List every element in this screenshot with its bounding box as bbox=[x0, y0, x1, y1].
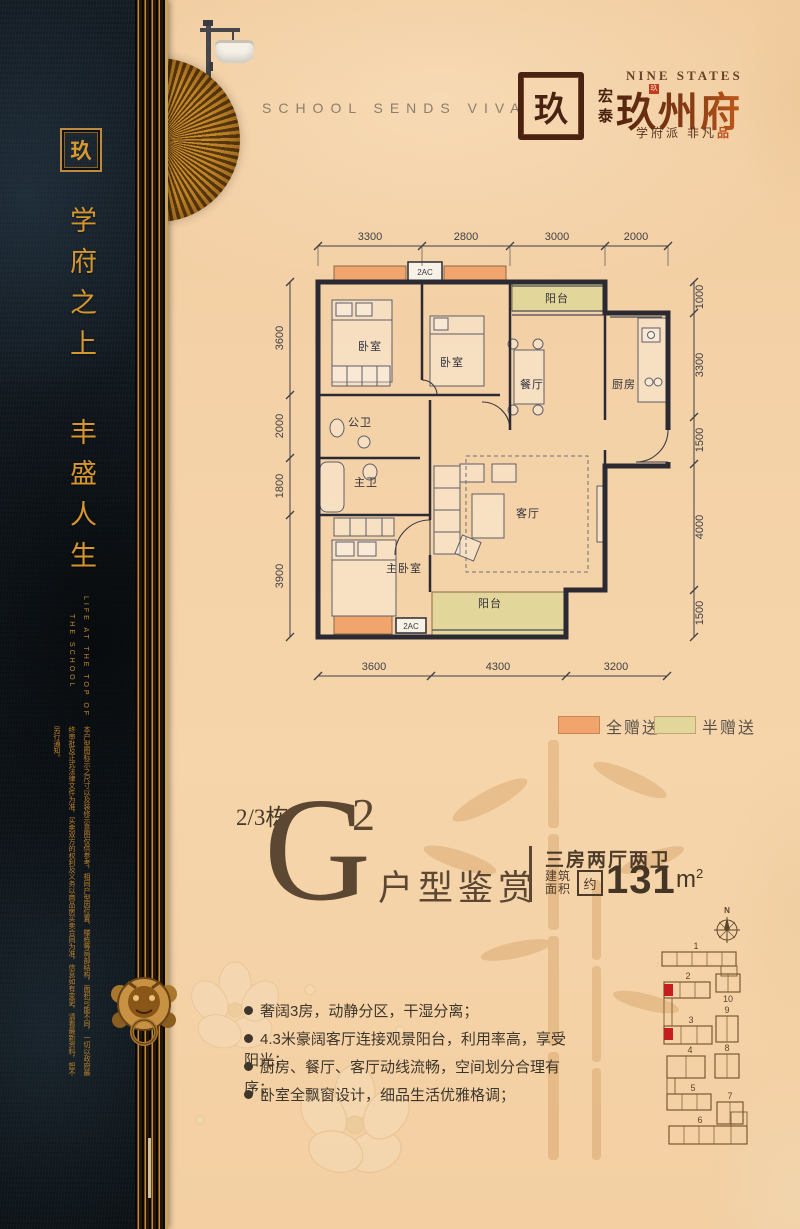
siteplan-key-map: N 1 2 3 4 5 6 bbox=[648, 898, 780, 1158]
bathtub bbox=[320, 462, 344, 512]
svg-text:6: 6 bbox=[697, 1115, 702, 1125]
unit-type-superscript: 2 bbox=[352, 788, 375, 841]
bay-window-full-gift-3 bbox=[334, 616, 392, 634]
area-label: 建筑 面积 bbox=[545, 870, 571, 896]
svg-text:3300: 3300 bbox=[694, 353, 706, 377]
svg-text:1: 1 bbox=[693, 941, 698, 951]
svg-text:1500: 1500 bbox=[694, 601, 706, 625]
bullet-icon bbox=[244, 1062, 253, 1071]
building-1 bbox=[662, 952, 736, 966]
svg-text:4: 4 bbox=[687, 1045, 692, 1055]
lamp-pole-bracket bbox=[209, 62, 213, 71]
area-value: 131 bbox=[606, 858, 676, 903]
svg-text:1500: 1500 bbox=[694, 428, 706, 452]
svg-text:3000: 3000 bbox=[545, 231, 569, 243]
room-label-bedroom1: 卧室 bbox=[358, 339, 382, 353]
svg-text:9: 9 bbox=[724, 1005, 729, 1015]
room-label-bath: 公卫 bbox=[348, 417, 372, 429]
svg-text:4000: 4000 bbox=[694, 515, 706, 539]
highlighted-unit-building-2 bbox=[664, 984, 673, 996]
svg-text:1800: 1800 bbox=[274, 474, 286, 498]
svg-text:3200: 3200 bbox=[604, 661, 628, 673]
brand-tagline-accent: 品 bbox=[717, 126, 732, 140]
sidebar-slogan-en-1: LIFE AT THE TOP OF bbox=[82, 596, 89, 718]
room-label-master-bath: 主卫 bbox=[354, 476, 378, 489]
bullet-icon bbox=[244, 1006, 253, 1015]
dining-table bbox=[514, 350, 544, 404]
wardrobe-master bbox=[334, 518, 394, 536]
bedroom2-door-arc bbox=[482, 402, 510, 430]
legend-label-half-gift: 半赠送 bbox=[702, 714, 756, 738]
feature-item-1: 奢阔3房，动静分区，干湿分离； bbox=[244, 1000, 574, 1021]
entry-door-arc bbox=[636, 430, 668, 462]
legend-swatch-full-gift bbox=[558, 716, 600, 734]
brand-prefix: 宏泰 bbox=[594, 88, 615, 128]
header-english-slogan: SCHOOL SENDS VIVA bbox=[262, 100, 526, 116]
compass-icon bbox=[714, 917, 740, 943]
feature-text-4: 卧室全飘窗设计，细品生活优雅格调； bbox=[260, 1087, 515, 1104]
room-label-bedroom2: 卧室 bbox=[440, 355, 464, 369]
feature-text-1: 奢阔3房，动静分区，干湿分离； bbox=[260, 1003, 478, 1020]
poster-page: 玖 学府之上 丰盛人生 LIFE AT THE TOP OF THE SCHOO… bbox=[0, 0, 800, 1229]
floorplan-drawing: 2AC 2AC bbox=[270, 222, 715, 692]
brand-tagline: 学府派 非凡品 bbox=[636, 124, 732, 141]
compass-north-label: N bbox=[724, 906, 730, 915]
lion-knocker-emblem bbox=[106, 968, 182, 1056]
lamp-post-finial bbox=[203, 20, 213, 26]
sidebar-seal-logo: 玖 bbox=[60, 128, 102, 172]
svg-text:2: 2 bbox=[685, 971, 690, 981]
brand-seal-char: 玖 bbox=[534, 82, 568, 131]
area-label-bottom: 面积 bbox=[545, 883, 571, 896]
brand-mini-seal: 玖 bbox=[649, 84, 659, 94]
svg-text:3600: 3600 bbox=[362, 661, 386, 673]
siteplan-building-numbers: 1 2 3 4 5 6 7 8 9 10 bbox=[685, 941, 733, 1125]
svg-text:2000: 2000 bbox=[624, 231, 648, 243]
title-divider bbox=[529, 846, 532, 902]
legend-label-full-gift: 全赠送 bbox=[606, 714, 660, 738]
lamp-shade bbox=[215, 40, 254, 63]
room-label-living: 客厅 bbox=[516, 506, 540, 520]
coffee-table bbox=[472, 494, 504, 538]
bullet-icon bbox=[244, 1034, 253, 1043]
svg-text:3900: 3900 bbox=[274, 564, 286, 588]
legend-swatch-half-gift bbox=[654, 716, 696, 734]
toilet-bath1 bbox=[330, 419, 344, 437]
room-label-kitchen: 厨房 bbox=[612, 378, 636, 391]
room-label-balcony-top: 阳台 bbox=[545, 291, 569, 305]
room-label-master-bedroom: 主卧室 bbox=[386, 561, 422, 575]
svg-text:3300: 3300 bbox=[358, 231, 382, 243]
brand-tagline-main: 学府派 非凡 bbox=[636, 126, 717, 140]
building-5 bbox=[667, 1094, 711, 1110]
gold-bar-glint bbox=[148, 1138, 151, 1198]
svg-text:3600: 3600 bbox=[274, 326, 286, 350]
master-door-arc bbox=[395, 520, 430, 555]
wardrobe-1 bbox=[332, 366, 390, 386]
approx-box: 约 bbox=[577, 870, 603, 896]
feature-item-4: 卧室全飘窗设计，细品生活优雅格调； bbox=[244, 1084, 574, 1105]
svg-text:10: 10 bbox=[723, 994, 733, 1004]
svg-text:1000: 1000 bbox=[694, 285, 706, 309]
unit-title-suffix: 户型鉴赏 bbox=[378, 860, 538, 911]
area-unit-m: m bbox=[676, 866, 696, 893]
sidebar-slogan-line2: 丰盛人生 bbox=[62, 418, 101, 582]
bullet-icon bbox=[244, 1090, 253, 1099]
room-label-dining: 餐厅 bbox=[520, 377, 544, 391]
sidebar-disclaimer: 本户型图标示之尺寸以及装修示意图仅供参考，相同户型因位置、楼栋等局部结构，面积可… bbox=[58, 726, 94, 1078]
highlighted-unit-building-3 bbox=[664, 1028, 673, 1040]
building-6 bbox=[669, 1126, 747, 1144]
ac-label-top: 2AC bbox=[417, 268, 433, 277]
svg-text:2000: 2000 bbox=[274, 414, 286, 438]
svg-text:5: 5 bbox=[690, 1083, 695, 1093]
siteplan-buildings bbox=[662, 952, 747, 1144]
room-label-balcony-bottom: 阳台 bbox=[478, 596, 502, 610]
brand-seal-logo: 玖 bbox=[518, 72, 584, 140]
area-unit-sup: 2 bbox=[696, 866, 703, 881]
sidebar-seal-char: 玖 bbox=[71, 135, 92, 165]
svg-text:7: 7 bbox=[727, 1091, 732, 1101]
area-unit: m2 bbox=[676, 866, 703, 894]
lamp-post-arm bbox=[200, 28, 240, 32]
svg-text:2800: 2800 bbox=[454, 231, 478, 243]
svg-text:8: 8 bbox=[724, 1043, 729, 1053]
svg-text:4300: 4300 bbox=[486, 661, 510, 673]
sidebar-slogan-line1: 学府之上 bbox=[62, 206, 101, 370]
svg-text:3: 3 bbox=[688, 1015, 693, 1025]
sidebar-slogan-en-2: THE SCHOOL bbox=[68, 614, 75, 690]
ac-label-bottom: 2AC bbox=[403, 622, 419, 631]
